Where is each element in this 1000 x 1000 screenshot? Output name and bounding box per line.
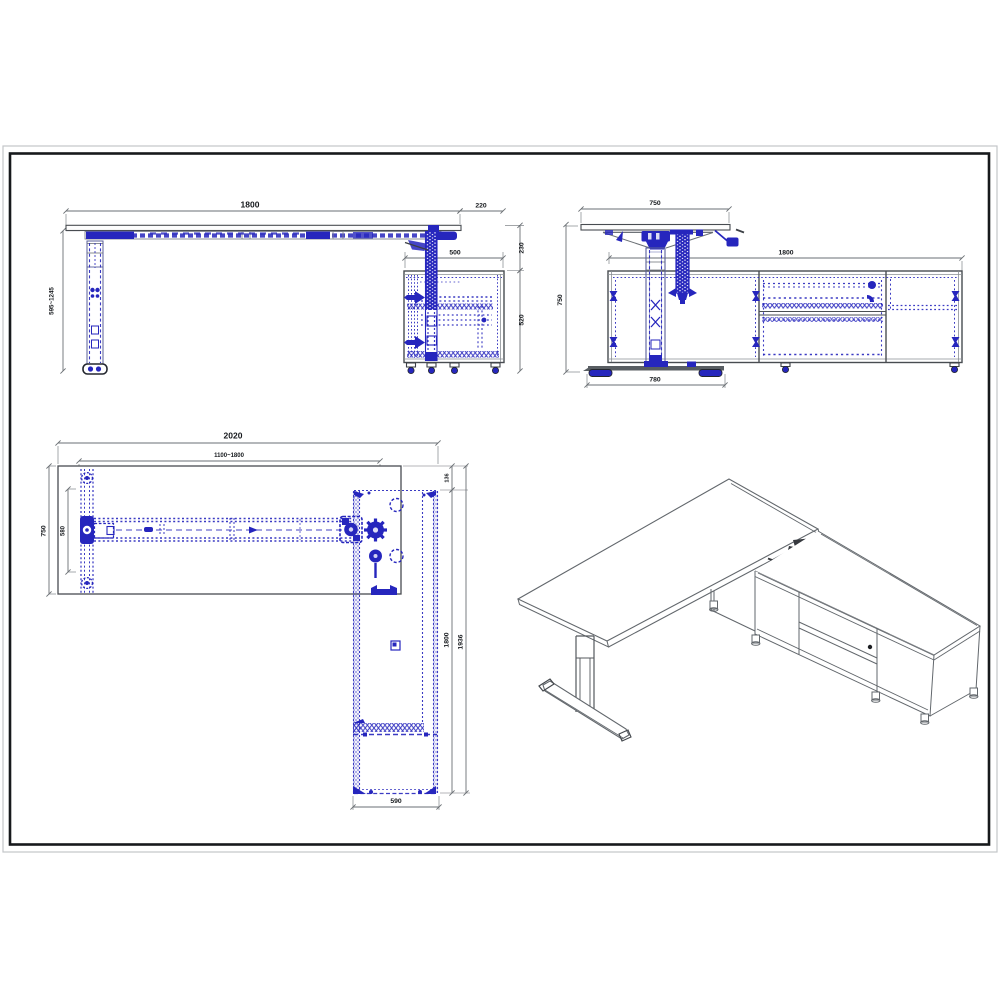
svg-text:750: 750 [41,525,48,537]
svg-text:136: 136 [445,473,451,482]
svg-text:1800: 1800 [444,632,451,647]
svg-text:1800: 1800 [241,200,260,210]
svg-text:500: 500 [449,250,461,257]
svg-text:750: 750 [557,294,564,306]
svg-text:750: 750 [649,200,661,207]
svg-text:580: 580 [61,525,67,536]
svg-text:230: 230 [519,242,526,254]
svg-text:595~1245: 595~1245 [49,287,56,315]
svg-text:220: 220 [475,203,487,210]
svg-text:1936: 1936 [458,634,465,649]
svg-text:1800: 1800 [778,250,793,257]
svg-text:2020: 2020 [224,431,243,441]
svg-text:1100~1800: 1100~1800 [214,453,245,459]
svg-text:520: 520 [519,314,526,326]
svg-text:590: 590 [390,798,402,805]
svg-text:780: 780 [649,377,661,384]
